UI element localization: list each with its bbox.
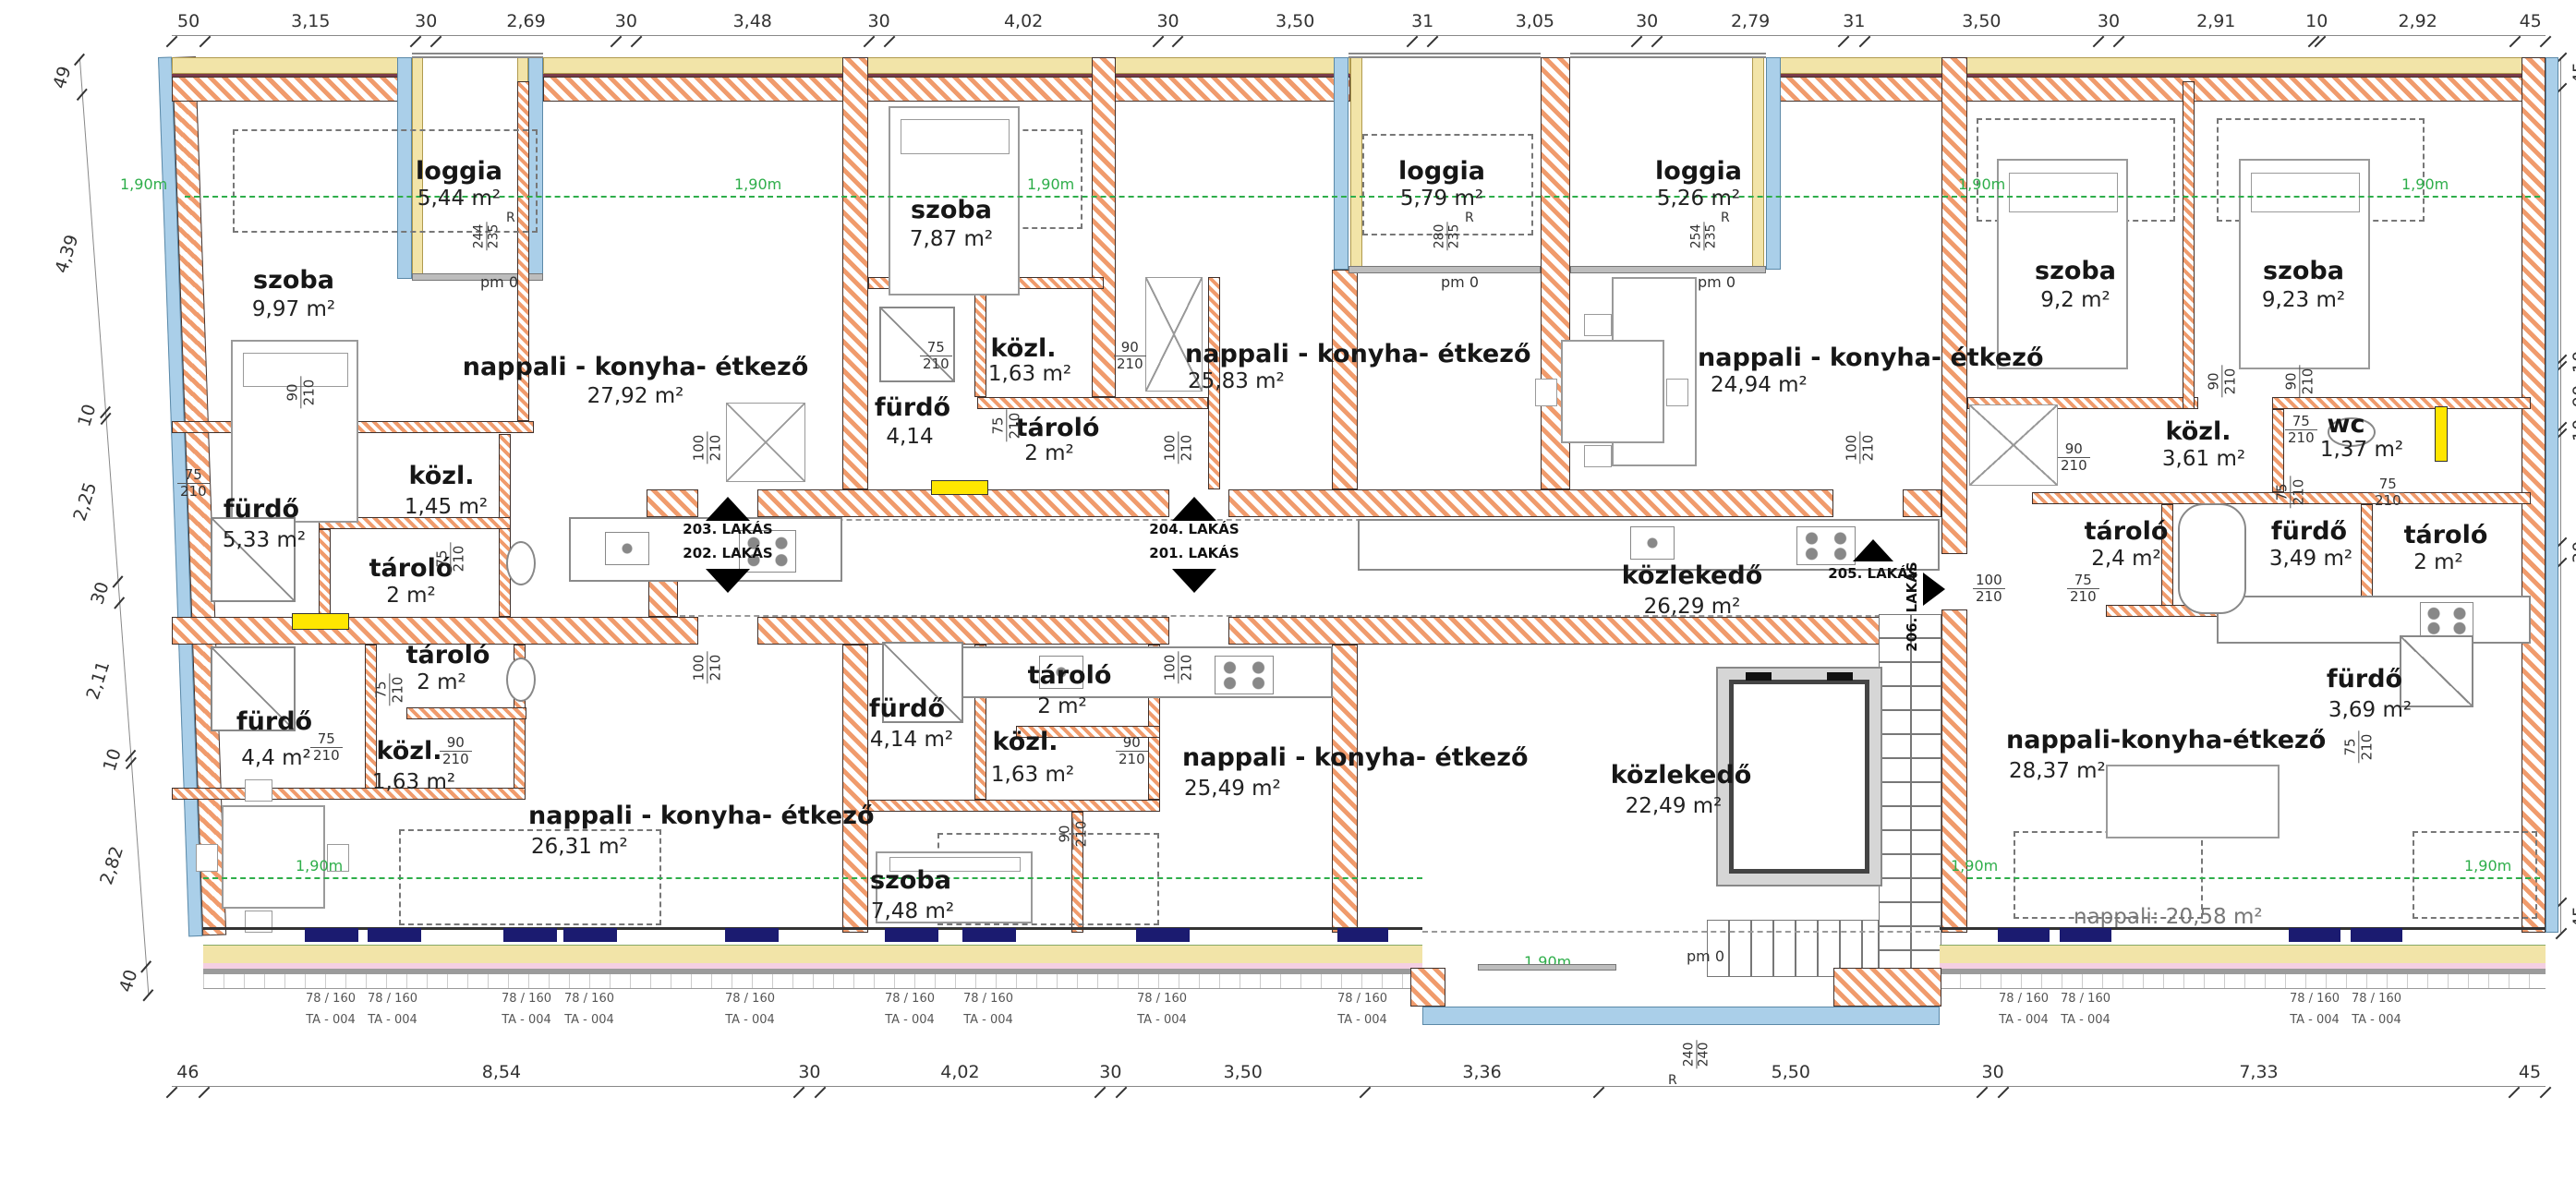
window-type-label: 78 / 160TA - 004 [868, 988, 951, 1031]
loggia-dim-pair: 280235 [1433, 223, 1462, 251]
wardrobe-dashed [2413, 831, 2537, 919]
room-area: 1,37 m² [2320, 438, 2403, 462]
room-area: 3,69 m² [2328, 698, 2412, 722]
door-size-label: 75210 [2285, 414, 2317, 445]
entry-arrow-up-icon [706, 497, 750, 521]
wall-segment [172, 77, 412, 102]
partition [2183, 81, 2195, 409]
door-size-label: 75210 [434, 543, 466, 575]
room-label: tároló [406, 641, 490, 669]
room-label: fürdő [2327, 665, 2402, 694]
door-size-label: 100210 [691, 652, 722, 684]
apartment-marker: 204. LAKÁS [1130, 521, 1259, 537]
room-area: 2 m² [1024, 441, 1074, 465]
green-line-label: 1,90m [2401, 175, 2449, 193]
stove-icon [1215, 656, 1274, 694]
cabinet-icon [1969, 404, 2058, 486]
facade-grid [203, 974, 1422, 989]
window-frame [885, 928, 938, 942]
room-label: fürdő [875, 393, 950, 422]
room-area: 9,97 m² [252, 297, 335, 321]
green-guide-line [185, 196, 2540, 198]
window-frame [2060, 928, 2111, 942]
loggia-railing [412, 53, 543, 58]
door-size-label: 75210 [373, 674, 405, 706]
green-line-label: 1,90m [734, 175, 781, 193]
room-area: 2 m² [1037, 694, 1087, 718]
room-label: közl. [990, 334, 1056, 363]
room-label: nappali-konyha-étkező [2006, 726, 2326, 754]
window-frame [368, 928, 421, 942]
sofa [2106, 765, 2280, 838]
green-guide-line [203, 877, 1422, 879]
partition [172, 788, 526, 800]
room-area: 5,44 m² [417, 187, 501, 211]
window-frame [563, 928, 617, 942]
room-label: szoba [2263, 257, 2344, 285]
entrance-glazing [1422, 1007, 1940, 1025]
room-area: 26,29 m² [1644, 595, 1741, 619]
room-label: loggia [416, 157, 502, 186]
door-size-label: 90210 [1114, 340, 1146, 371]
room-area: 2 m² [417, 670, 466, 694]
window-frame [1998, 928, 2050, 942]
partition [977, 397, 1208, 409]
room-area: 27,92 m² [587, 384, 684, 408]
green-line-label: 1,90m [1951, 857, 1998, 874]
door-size-label: 100210 [1162, 652, 1193, 684]
sink-icon [605, 532, 649, 565]
bathtub-icon [2178, 503, 2246, 614]
room-label: loggia [1398, 157, 1485, 186]
door-size-label: 75210 [177, 467, 210, 499]
insulation-strip [543, 57, 1350, 74]
partition [868, 800, 1160, 812]
room-area: 4,14 [886, 425, 933, 449]
level-mark-r: R [1668, 1073, 1677, 1088]
chair [196, 844, 218, 872]
entry-arrow-right-icon [1923, 573, 1945, 606]
door-size-label: 90210 [1057, 818, 1088, 850]
loggia-railing [1348, 53, 1541, 58]
room-label: szoba [870, 866, 951, 895]
loggia-sliding-door [1348, 266, 1541, 273]
loggia-sliding-door [1570, 266, 1766, 273]
room-label: fürdő [224, 495, 299, 524]
door-size-label: 100210 [1844, 432, 1875, 464]
door-size-label: 75210 [2067, 573, 2099, 604]
wall-segment [842, 57, 868, 489]
room-label: közlekedő [1622, 561, 1762, 590]
door-size-label: 90210 [2283, 366, 2315, 398]
wall-segment [1332, 645, 1358, 933]
chair [1584, 314, 1612, 336]
room-label: fürdő [2271, 517, 2347, 546]
window-type-label: 78 / 160TA - 004 [1120, 988, 1203, 1031]
door-size-label: 100210 [1973, 573, 2005, 604]
room-label: nappali - konyha- étkező [1185, 340, 1531, 368]
door-size-label: 90210 [1116, 735, 1148, 766]
door-size-label: 100210 [1162, 432, 1193, 464]
room-area: 5,33 m² [223, 528, 306, 552]
door-size-label: 75210 [310, 731, 343, 763]
stove-icon [1796, 526, 1856, 565]
entry-arrow-up-icon [1853, 539, 1893, 561]
room-label: fürdő [236, 707, 312, 736]
wall-segment [757, 617, 1169, 645]
door-size-label: 90210 [2058, 441, 2090, 473]
window-type-label: 78 / 160TA - 004 [708, 988, 792, 1031]
loggia-glazing [1766, 57, 1781, 270]
wall-segment [647, 489, 698, 517]
wall-segment [1903, 489, 1941, 517]
kitchen-counter [2217, 596, 2531, 644]
door-size-label: 100210 [691, 432, 722, 464]
loggia-dim-pair: 254235 [1689, 223, 1719, 251]
room-label: wc [2328, 410, 2365, 439]
radiator [2435, 406, 2448, 462]
toilet-icon [506, 541, 536, 585]
wall-segment [1941, 609, 1967, 933]
room-label: szoba [911, 196, 992, 224]
room-label: tároló [1016, 414, 1100, 442]
room-label: nappali - konyha- étkező [528, 802, 875, 830]
room-area: 7,87 m² [910, 227, 993, 251]
window-frame [962, 928, 1016, 942]
room-label: szoba [253, 266, 334, 295]
corridor-door-dash [680, 615, 1936, 617]
room-label: nappali - konyha- étkező [463, 353, 809, 381]
door-size-label: 75210 [990, 410, 1022, 442]
window-type-label: 78 / 160TA - 004 [548, 988, 631, 1031]
dining-table [1561, 340, 1664, 443]
wall-segment [1092, 57, 1116, 397]
sink-icon [1630, 526, 1675, 560]
window-frame [503, 928, 557, 942]
room-area: 3,49 m² [2269, 547, 2352, 571]
room-area: 22,49 m² [1626, 794, 1723, 818]
window-frame [1337, 928, 1388, 942]
room-area: 3,61 m² [2162, 447, 2245, 471]
wall-segment [1228, 617, 1941, 645]
green-line-label: 1,90m [120, 175, 167, 193]
level-mark-r: R [1721, 211, 1730, 225]
insulation-strip [1752, 57, 1764, 270]
door-size-label: 75210 [2274, 476, 2305, 509]
window-frame [1136, 928, 1190, 942]
room-area: 1,63 m² [991, 763, 1074, 787]
insulation-strip [1350, 57, 1362, 270]
room-area: 2 m² [386, 584, 436, 608]
apartment-marker: 201. LAKÁS [1130, 545, 1259, 561]
entrance-dash-line [1422, 931, 1940, 933]
wall-segment [842, 645, 868, 933]
room-area: 7,48 m² [871, 899, 954, 923]
room-area: 1,63 m² [372, 770, 455, 794]
room-area: 24,94 m² [1711, 373, 1808, 397]
wall-segment [1410, 968, 1445, 1007]
green-line-label: 1,90m [296, 857, 343, 874]
floor-plan: 503,15302,69303,48304,02303,50313,05302,… [0, 0, 2576, 1182]
window-frame [2351, 928, 2402, 942]
elevator-door [1746, 672, 1772, 681]
entry-arrow-down-icon [1172, 569, 1216, 593]
level-mark-r: R [1465, 211, 1474, 225]
facade-strip [203, 945, 1422, 963]
door-size-label: 90210 [2206, 366, 2237, 398]
partition [974, 289, 986, 397]
facade-grid [1940, 974, 2546, 989]
partition [2272, 397, 2531, 409]
door-size-label: 90210 [284, 377, 316, 409]
green-guide-line [1967, 877, 2540, 879]
room-area: 2 m² [2413, 550, 2463, 574]
door-size-label: 90210 [440, 735, 472, 766]
partition [406, 707, 526, 719]
elevator-door [1827, 672, 1853, 681]
right-dimension-chain: 453,991090101,60305,0045 [2560, 57, 2576, 933]
level-mark-pm0: pm 0 [1441, 273, 1479, 291]
radiator [931, 480, 988, 495]
wall-segment [1332, 270, 1358, 489]
room-label: loggia [1655, 157, 1742, 186]
room-label: közl. [408, 462, 474, 490]
room-label: közlekedő [1611, 761, 1751, 790]
level-mark-pm0: pm 0 [1687, 947, 1724, 965]
room-area: 5,79 m² [1400, 187, 1483, 211]
room-label: tároló [2085, 517, 2169, 546]
room-area: 1,45 m² [405, 495, 488, 519]
room-label: nappali - konyha- étkező [1698, 344, 2044, 372]
room-area: 9,23 m² [2262, 288, 2345, 312]
wall-segment [543, 77, 1350, 102]
wall-segment [1228, 489, 1833, 517]
loggia-glazing [1334, 57, 1348, 270]
window-type-label: 78 / 160TA - 004 [351, 988, 434, 1031]
apartment-marker: 203. LAKÁS [663, 521, 792, 537]
entrance-dim-pair: 240240 [1682, 1041, 1711, 1069]
insulation-strip [172, 57, 412, 74]
insulation-strip [1779, 57, 2546, 74]
shower-icon [2400, 635, 2473, 707]
room-label: tároló [2404, 521, 2488, 549]
room-label: közl. [2165, 417, 2231, 446]
window-type-label: 78 / 160TA - 004 [2044, 988, 2127, 1031]
green-line-label: 1,90m [1958, 175, 2005, 193]
level-mark-pm0: pm 0 [1698, 273, 1735, 291]
facade-strip [1940, 945, 2546, 963]
green-line-label: 1,90m [1027, 175, 1074, 193]
top-dimension-chain: 503,15302,69303,48304,02303,50313,05302,… [172, 9, 2546, 36]
entry-arrow-up-icon [1172, 497, 1216, 521]
chair [1584, 445, 1612, 467]
left-dimension-chain: 494,39102,25302,11102,8240 [48, 58, 149, 996]
wall-segment [1779, 77, 2546, 102]
room-area: 26,31 m² [531, 835, 628, 859]
door-size-label: 75210 [2372, 476, 2404, 508]
window-type-label: 78 / 160TA - 004 [947, 988, 1030, 1031]
room-label: közl. [992, 728, 1058, 756]
entrance-sliding-door [1478, 964, 1616, 971]
level-mark-r: R [506, 211, 515, 225]
loggia-railing [1570, 53, 1766, 58]
window-frame [2289, 928, 2340, 942]
window-frame [725, 928, 779, 942]
green-line-label: 1,90m [2464, 857, 2511, 874]
chair [245, 779, 272, 802]
bottom-dimension-chain: 468,54304,02303,503,365,50307,3345 [172, 1060, 2546, 1087]
room-area: 4,14 m² [870, 728, 953, 752]
window-frame [305, 928, 358, 942]
window-type-label: 78 / 160TA - 004 [2335, 988, 2418, 1031]
toilet-icon [506, 657, 536, 702]
room-area: 25,49 m² [1184, 777, 1281, 801]
room-area: 5,26 m² [1657, 187, 1740, 211]
room-area: 9,2 m² [2040, 288, 2110, 312]
room-sub-area: nappali: 20,58 m² [2074, 905, 2263, 929]
room-area: 28,37 m² [2009, 759, 2106, 783]
room-area: 1,63 m² [988, 362, 1071, 386]
cabinet-icon [726, 403, 805, 482]
apartment-marker: 206. LAKÁS [1904, 551, 1920, 662]
window-type-label: 78 / 160TA - 004 [1321, 988, 1404, 1031]
outer-glazing-strip [2546, 57, 2558, 933]
room-label: szoba [2035, 257, 2116, 285]
room-area: 25,83 m² [1188, 369, 1285, 393]
room-area: 2,4 m² [2091, 547, 2161, 571]
room-label: fürdő [869, 694, 945, 723]
level-mark-pm0: pm 0 [480, 273, 518, 291]
partition [319, 529, 331, 617]
stove-icon [2420, 602, 2473, 639]
radiator [292, 613, 349, 630]
chair [1535, 379, 1557, 406]
entry-arrow-down-icon [706, 569, 750, 593]
apartment-marker: 202. LAKÁS [663, 545, 792, 561]
door-size-label: 75210 [920, 340, 952, 371]
stairs [1879, 614, 1941, 976]
chair [1666, 379, 1688, 406]
wall-segment [1833, 968, 1941, 1007]
room-area: 4,4 m² [241, 746, 311, 770]
room-label: nappali - konyha- étkező [1182, 743, 1529, 772]
loggia-dim-pair: 244235 [472, 223, 502, 251]
room-label: tároló [1028, 661, 1112, 690]
wall-segment [1941, 57, 1967, 554]
room-label: közl. [376, 737, 441, 766]
door-size-label: 75210 [2342, 731, 2374, 764]
